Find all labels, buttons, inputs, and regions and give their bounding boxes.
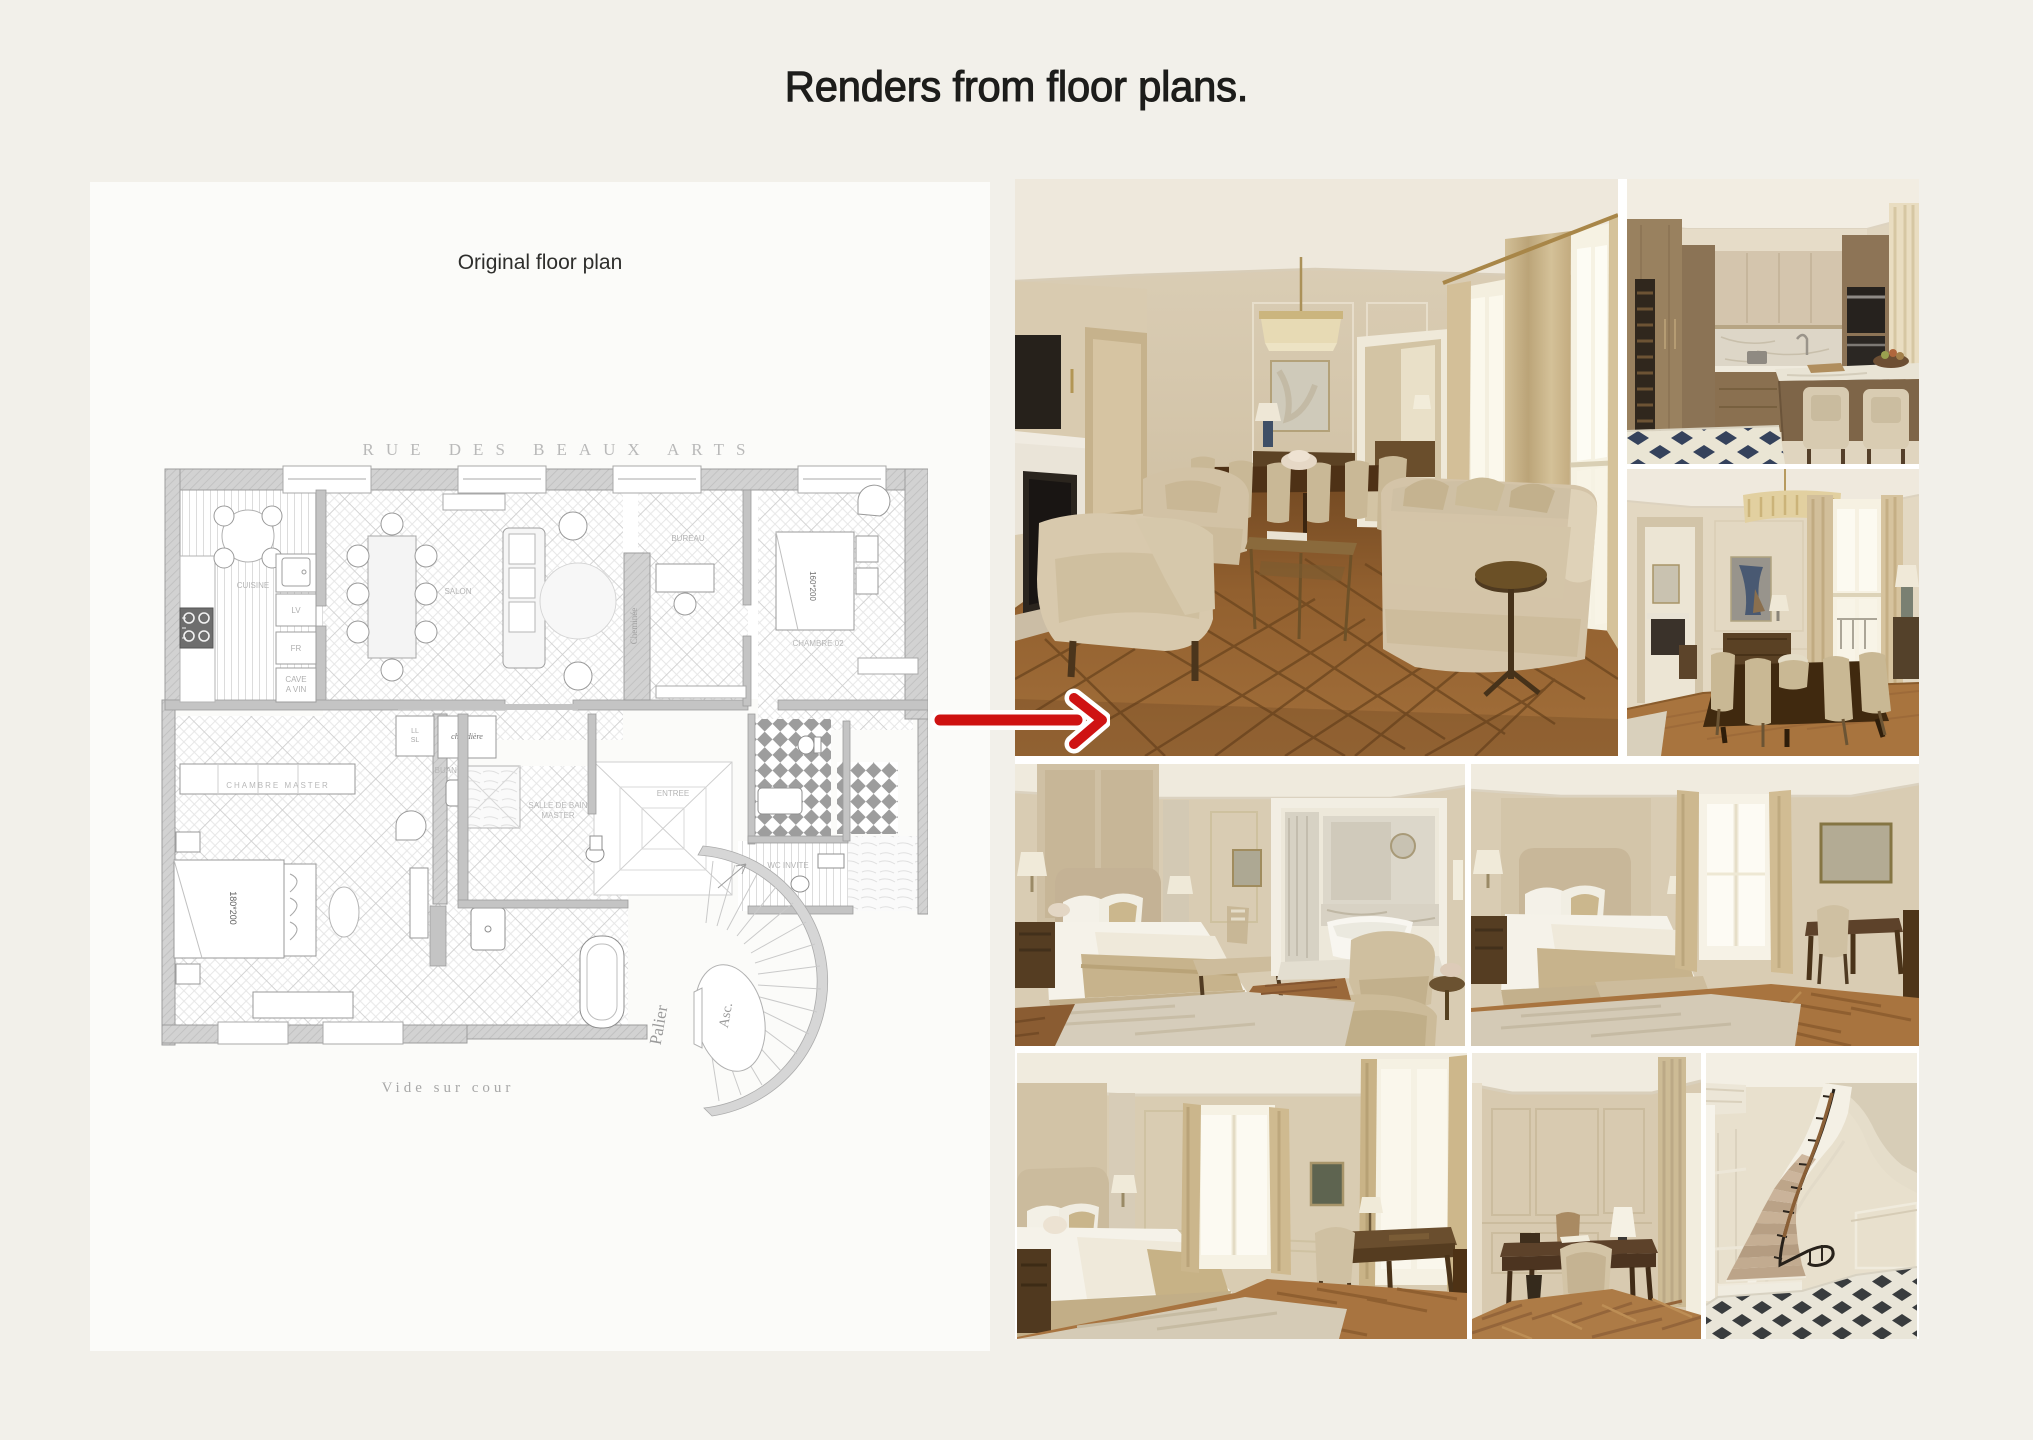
svg-text:SL: SL <box>411 737 420 744</box>
svg-text:160*200: 160*200 <box>808 571 817 601</box>
svg-text:CHAMBRE MASTER: CHAMBRE MASTER <box>226 781 330 790</box>
svg-text:SALON: SALON <box>444 587 471 596</box>
svg-text:WC INVITE: WC INVITE <box>767 861 808 870</box>
svg-text:Vide sur cour: Vide sur cour <box>382 1080 515 1096</box>
svg-text:180*200: 180*200 <box>228 891 238 925</box>
svg-text:MASTER: MASTER <box>541 811 575 820</box>
svg-text:FR: FR <box>291 644 302 653</box>
svg-text:A VIN: A VIN <box>286 685 307 694</box>
svg-text:LV: LV <box>291 606 301 615</box>
svg-text:SALLE DE BAIN: SALLE DE BAIN <box>528 801 587 810</box>
svg-text:ENTREE: ENTREE <box>657 789 689 798</box>
svg-text:CUISINE: CUISINE <box>237 581 269 590</box>
svg-text:Cheminée: Cheminée <box>629 608 639 645</box>
svg-text:CAVE: CAVE <box>285 675 306 684</box>
svg-text:CHAMBRE 02: CHAMBRE 02 <box>792 639 844 648</box>
svg-text:Palier: Palier <box>646 1004 672 1047</box>
svg-text:RUE DES BEAUX ARTS: RUE DES BEAUX ARTS <box>363 440 758 459</box>
svg-text:LL: LL <box>411 728 419 735</box>
svg-text:BUREAU: BUREAU <box>671 534 705 543</box>
